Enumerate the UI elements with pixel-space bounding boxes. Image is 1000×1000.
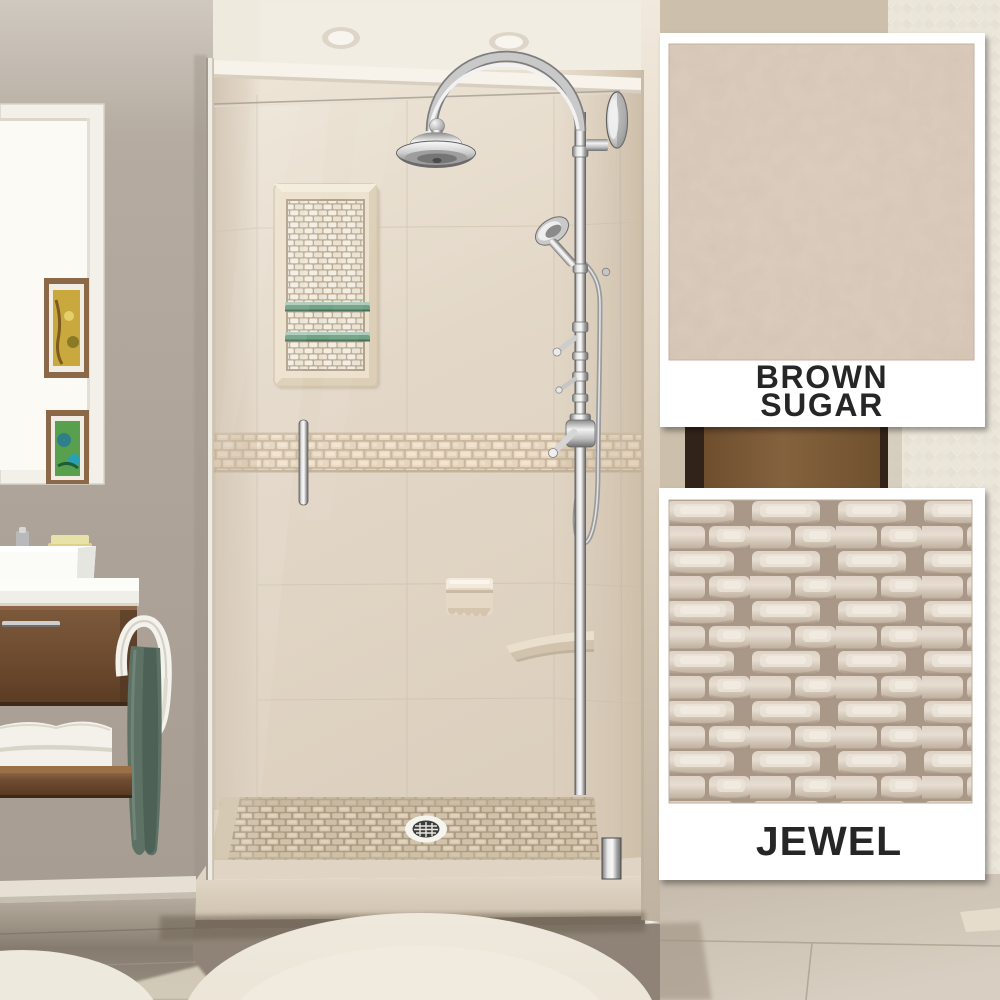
svg-text:SUGAR: SUGAR: [760, 387, 884, 423]
svg-text:JEWEL: JEWEL: [756, 818, 902, 864]
